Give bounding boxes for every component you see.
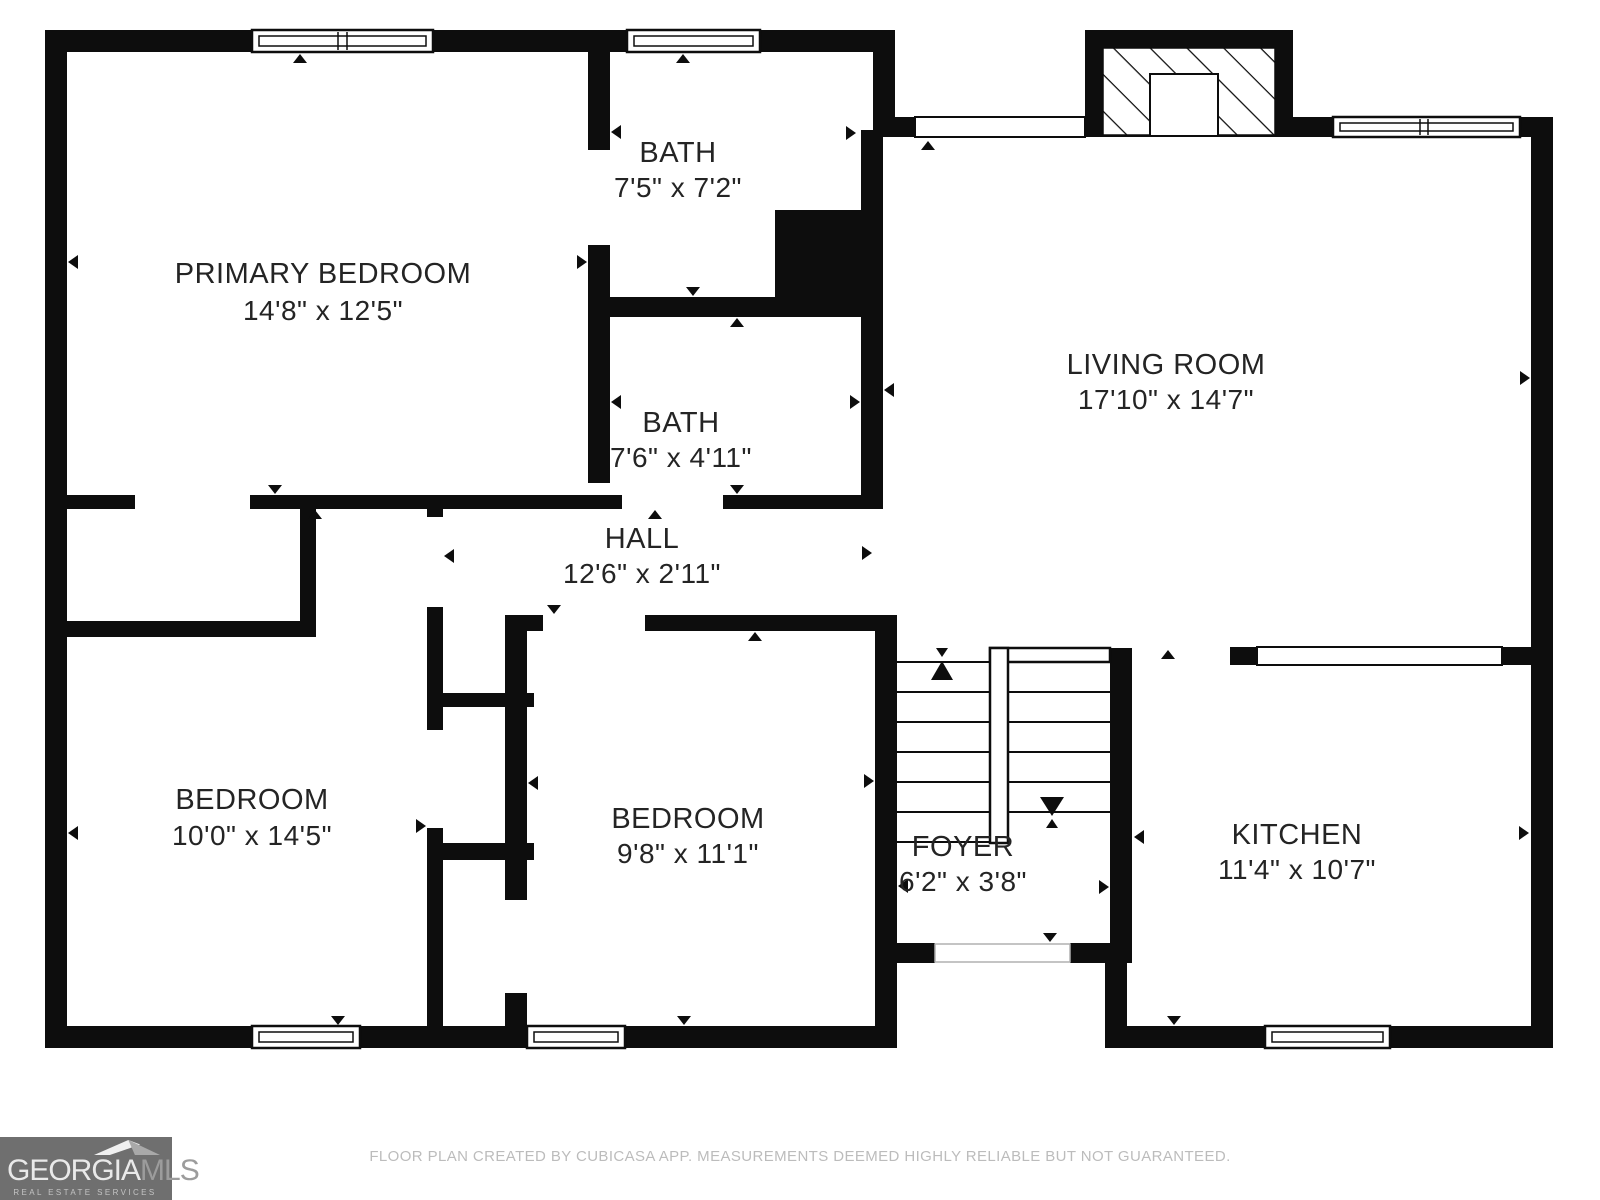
wall-v4-upper — [427, 607, 443, 730]
marker-primary-right — [577, 255, 587, 269]
room-name: BEDROOM — [175, 784, 328, 816]
window-bedroom1-bottom — [252, 1026, 360, 1048]
entry-door-threshold — [935, 944, 1070, 962]
marker-bath-divider-bottom — [730, 318, 744, 327]
wall-exterior-step — [873, 30, 895, 137]
wall-v4-stub — [427, 505, 443, 517]
footer-disclaimer: FLOOR PLAN CREATED BY CUBICASA APP. MEAS… — [0, 1148, 1600, 1165]
room-dims: 10'0" x 14'5" — [172, 820, 332, 851]
marker-bedroom1-closet — [416, 819, 426, 833]
wall-bath-living-divider — [861, 130, 883, 497]
room-name: BATH — [639, 137, 716, 169]
room-name: LIVING ROOM — [1067, 349, 1266, 381]
marker-kitchen-opening — [1161, 650, 1175, 659]
room-dims: 12'6" x 2'11" — [563, 558, 721, 589]
room-name: BATH — [642, 407, 719, 439]
stair-center-rail — [990, 648, 1008, 843]
marker-closet-door-top — [268, 485, 282, 494]
walls — [45, 30, 1553, 1048]
marker-bedroom1-left — [68, 826, 78, 840]
room-name: BEDROOM — [611, 803, 764, 835]
floorplan-page: PRIMARY BEDROOM 14'8" x 12'5" BATH 7'5" … — [0, 0, 1600, 1200]
room-name: FOYER — [912, 831, 1014, 863]
wall-exterior-right — [1531, 117, 1553, 1048]
marker-bath2-left — [611, 395, 621, 409]
marker-kitchen-right — [1519, 826, 1529, 840]
fireplace-icon — [1085, 30, 1293, 137]
room-label-bath-lower: BATH 7'6" x 4'11" — [610, 407, 752, 473]
marker-foyer-right — [1099, 880, 1109, 894]
room-dims: 9'8" x 11'1" — [617, 838, 759, 869]
wall-bedroom2-top-stub — [505, 615, 543, 631]
window-band-living — [915, 117, 1085, 137]
wall-foyer-kitchen — [1110, 648, 1132, 963]
marker-hall-east — [862, 546, 872, 560]
wall-bath1-left-upper — [588, 52, 610, 150]
wall-exterior-left — [45, 30, 67, 1048]
room-label-foyer: FOYER 6'2" x 3'8" — [899, 831, 1027, 897]
marker-bedroom2-door-bottom — [748, 632, 762, 641]
marker-bedroom2-door-top — [547, 605, 561, 614]
marker-window-primary — [293, 54, 307, 63]
wall-kitchen-top-b — [1502, 647, 1533, 665]
room-label-hall: HALL 12'6" x 2'11" — [563, 523, 721, 589]
wall-v5-stub — [505, 993, 527, 1026]
room-dims: 7'6" x 4'11" — [610, 442, 752, 473]
wall-chase-block — [775, 210, 873, 317]
marker-bath1-door-left — [611, 125, 621, 139]
room-name: KITCHEN — [1232, 819, 1363, 851]
georgia-mls-logo: GEORGIAMLS REAL ESTATE SERVICES — [0, 1137, 172, 1200]
window-living-double — [1333, 117, 1520, 137]
room-name: HALL — [605, 523, 680, 555]
logo-tagline: REAL ESTATE SERVICES — [0, 1188, 170, 1197]
marker-kitchen-bottom — [1167, 1016, 1181, 1025]
room-dims: 17'10" x 14'7" — [1078, 384, 1254, 415]
window-bedroom2-bottom — [527, 1026, 625, 1048]
room-dims: 14'8" x 12'5" — [243, 295, 403, 326]
marker-primary-left — [68, 255, 78, 269]
window-kitchen-bottom — [1265, 1026, 1390, 1048]
window-band-kitchen — [1257, 647, 1502, 665]
marker-bath-divider-top — [686, 287, 700, 296]
window-bath-top — [627, 30, 760, 52]
room-label-kitchen: KITCHEN 11'4" x 10'7" — [1218, 819, 1376, 885]
wall-hall-top-c — [723, 495, 883, 509]
marker-living-right — [1520, 371, 1530, 385]
marker-bath2-right — [850, 395, 860, 409]
staircase — [897, 648, 1110, 843]
wall-kitchen-top-a — [1230, 647, 1257, 665]
room-dims: 6'2" x 3'8" — [899, 866, 1027, 897]
marker-bedroom2-right — [864, 774, 874, 788]
wall-bath-divider — [588, 297, 775, 317]
room-name: PRIMARY BEDROOM — [175, 258, 471, 290]
marker-living-left — [884, 383, 894, 397]
marker-window-bedroom2 — [677, 1016, 691, 1025]
wall-hall-top-a — [45, 495, 135, 509]
marker-bedroom2-closet — [528, 776, 538, 790]
wall-v5-upper — [505, 615, 527, 900]
room-dims: 11'4" x 10'7" — [1218, 854, 1376, 885]
wall-exterior-top-left — [45, 30, 895, 52]
marker-kitchen-left — [1134, 830, 1144, 844]
window-primary-double — [252, 30, 433, 52]
wall-closet1-right — [300, 509, 316, 621]
room-label-living-room: LIVING ROOM 17'10" x 14'7" — [1067, 349, 1266, 415]
room-label-bath-upper: BATH 7'5" x 7'2" — [614, 137, 742, 203]
room-label-primary-bedroom: PRIMARY BEDROOM 14'8" x 12'5" — [175, 258, 471, 326]
room-label-bedroom-middle: BEDROOM 9'8" x 11'1" — [611, 803, 764, 869]
marker-bath1-door-right — [846, 126, 856, 140]
wall-bedroom2-right — [875, 615, 897, 1048]
floorplan-drawing: PRIMARY BEDROOM 14'8" x 12'5" BATH 7'5" … — [0, 0, 1600, 1200]
room-label-bedroom-left: BEDROOM 10'0" x 14'5" — [172, 784, 332, 851]
wall-closet1-bottom — [45, 621, 316, 637]
marker-window-bath — [676, 54, 690, 63]
marker-bath2-door-top — [730, 485, 744, 494]
marker-window-bedroom1 — [331, 1016, 345, 1025]
marker-bedroom1-door — [444, 549, 454, 563]
marker-entry-door — [1043, 933, 1057, 942]
marker-living-top — [921, 141, 935, 150]
marker-bath2-door-bottom — [648, 510, 662, 519]
wall-bath-left-lower — [588, 245, 610, 483]
room-labels: PRIMARY BEDROOM 14'8" x 12'5" BATH 7'5" … — [172, 137, 1376, 897]
wall-bedroom2-top — [645, 615, 875, 631]
room-dims: 7'5" x 7'2" — [614, 172, 742, 203]
wall-exterior-bottom-left — [45, 1026, 893, 1048]
